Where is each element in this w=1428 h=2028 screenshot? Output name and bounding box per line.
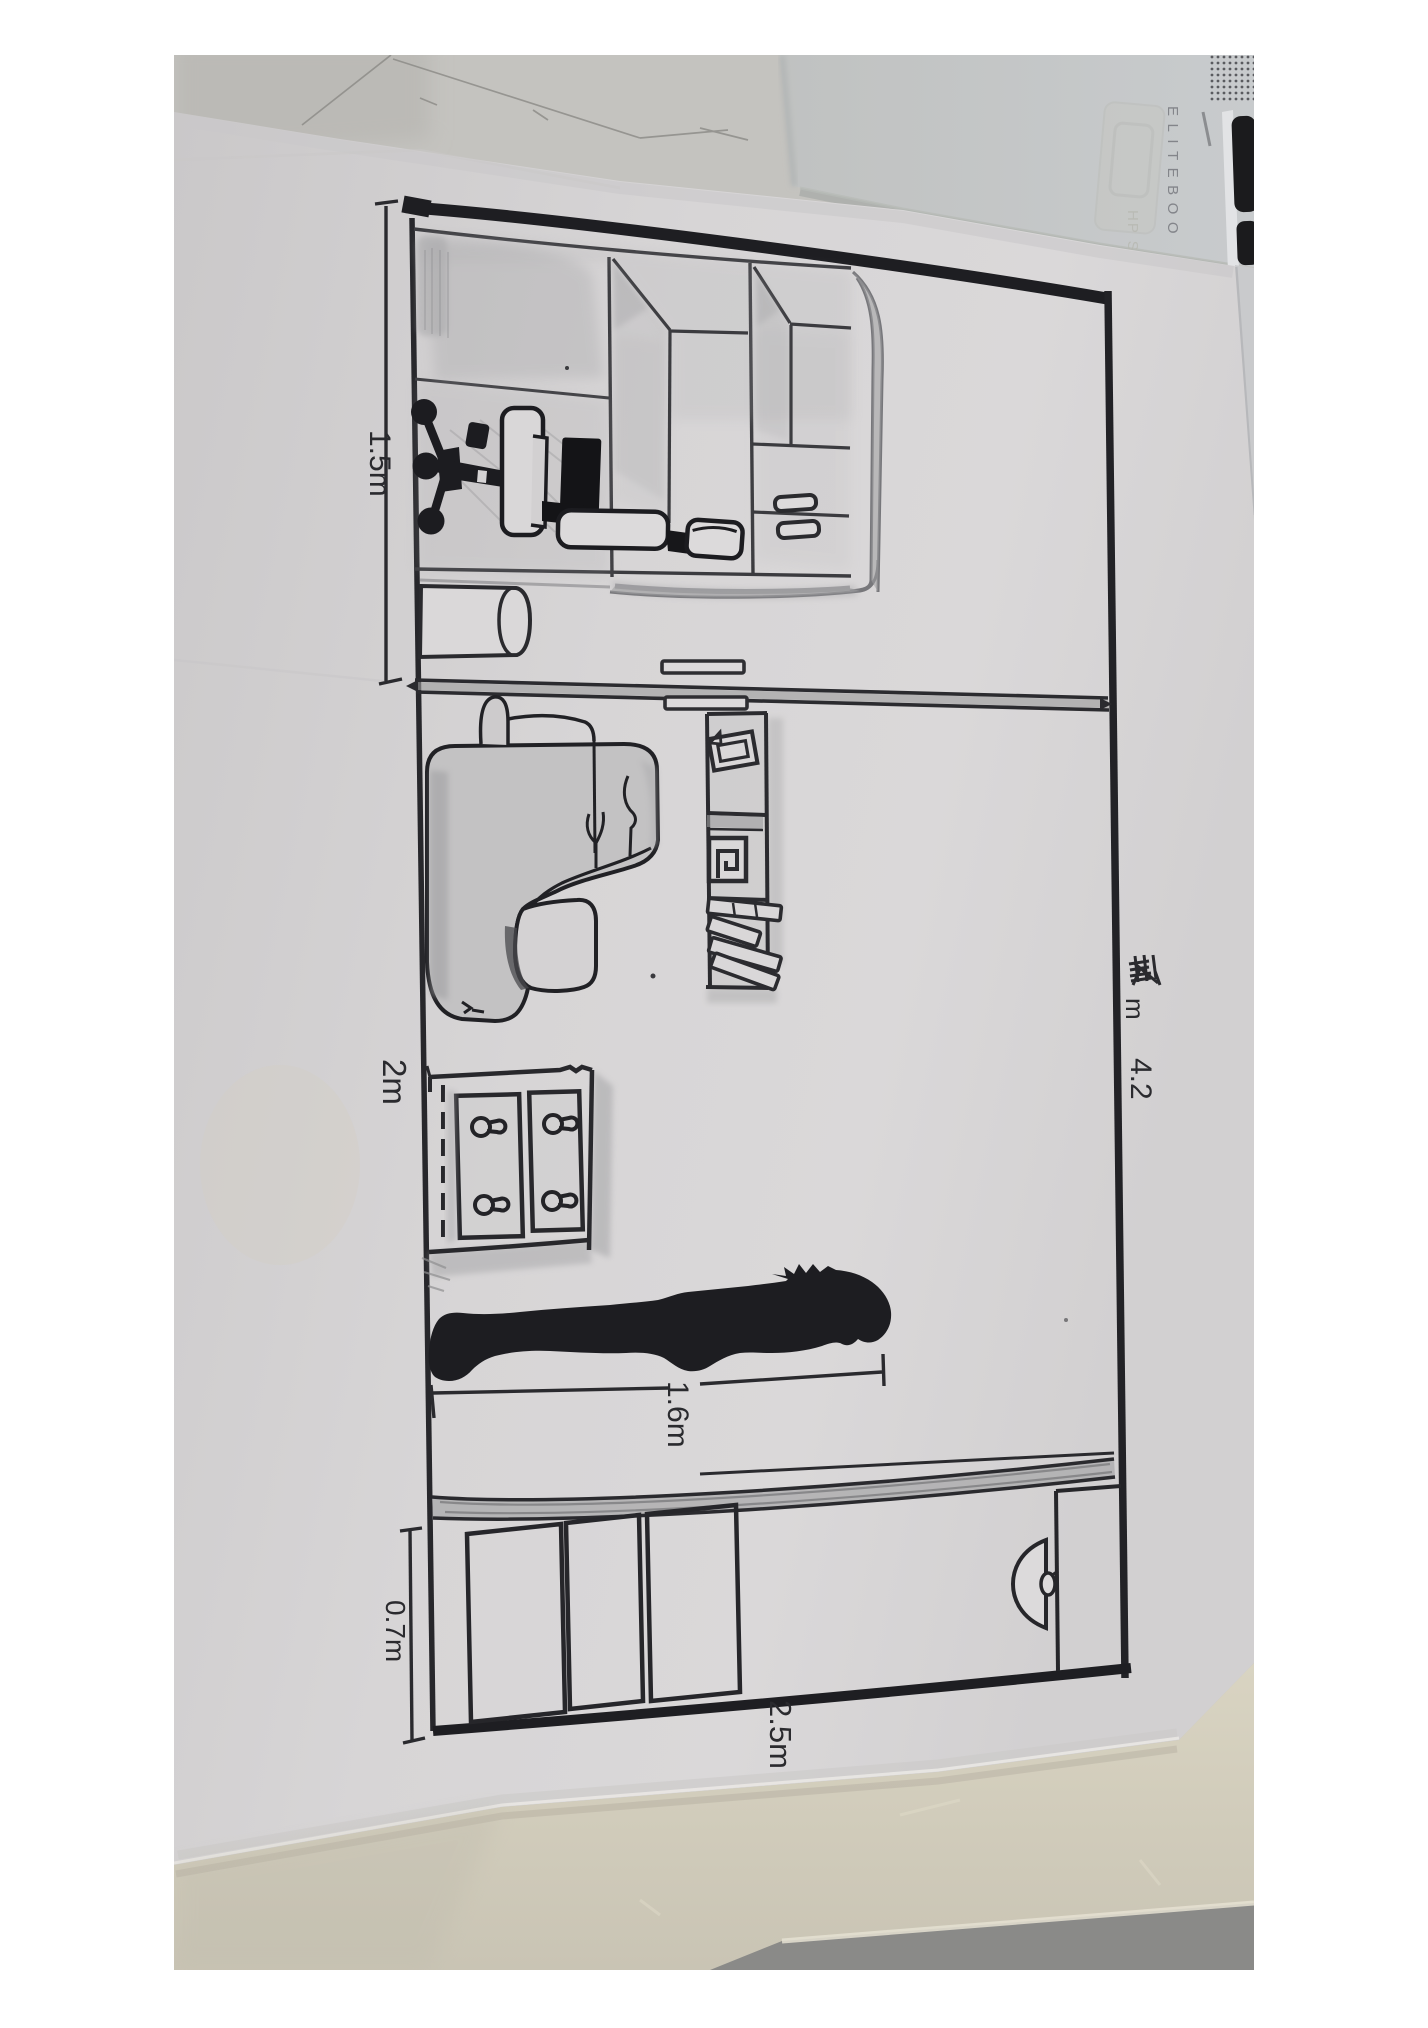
svg-text:4.2: 4.2 — [1124, 1058, 1157, 1100]
svg-text:1.5m: 1.5m — [363, 430, 396, 497]
svg-text:0.7m: 0.7m — [380, 1600, 411, 1662]
svg-text:1.6m: 1.6m — [661, 1381, 694, 1448]
svg-text:m: m — [1120, 998, 1150, 1020]
svg-text:2m: 2m — [376, 1059, 413, 1105]
svg-text:2.5m: 2.5m — [763, 1700, 798, 1769]
svg-text:ELITEBOO: ELITEBOO — [1164, 106, 1181, 241]
svg-text:HP S: HP S — [1124, 210, 1141, 253]
